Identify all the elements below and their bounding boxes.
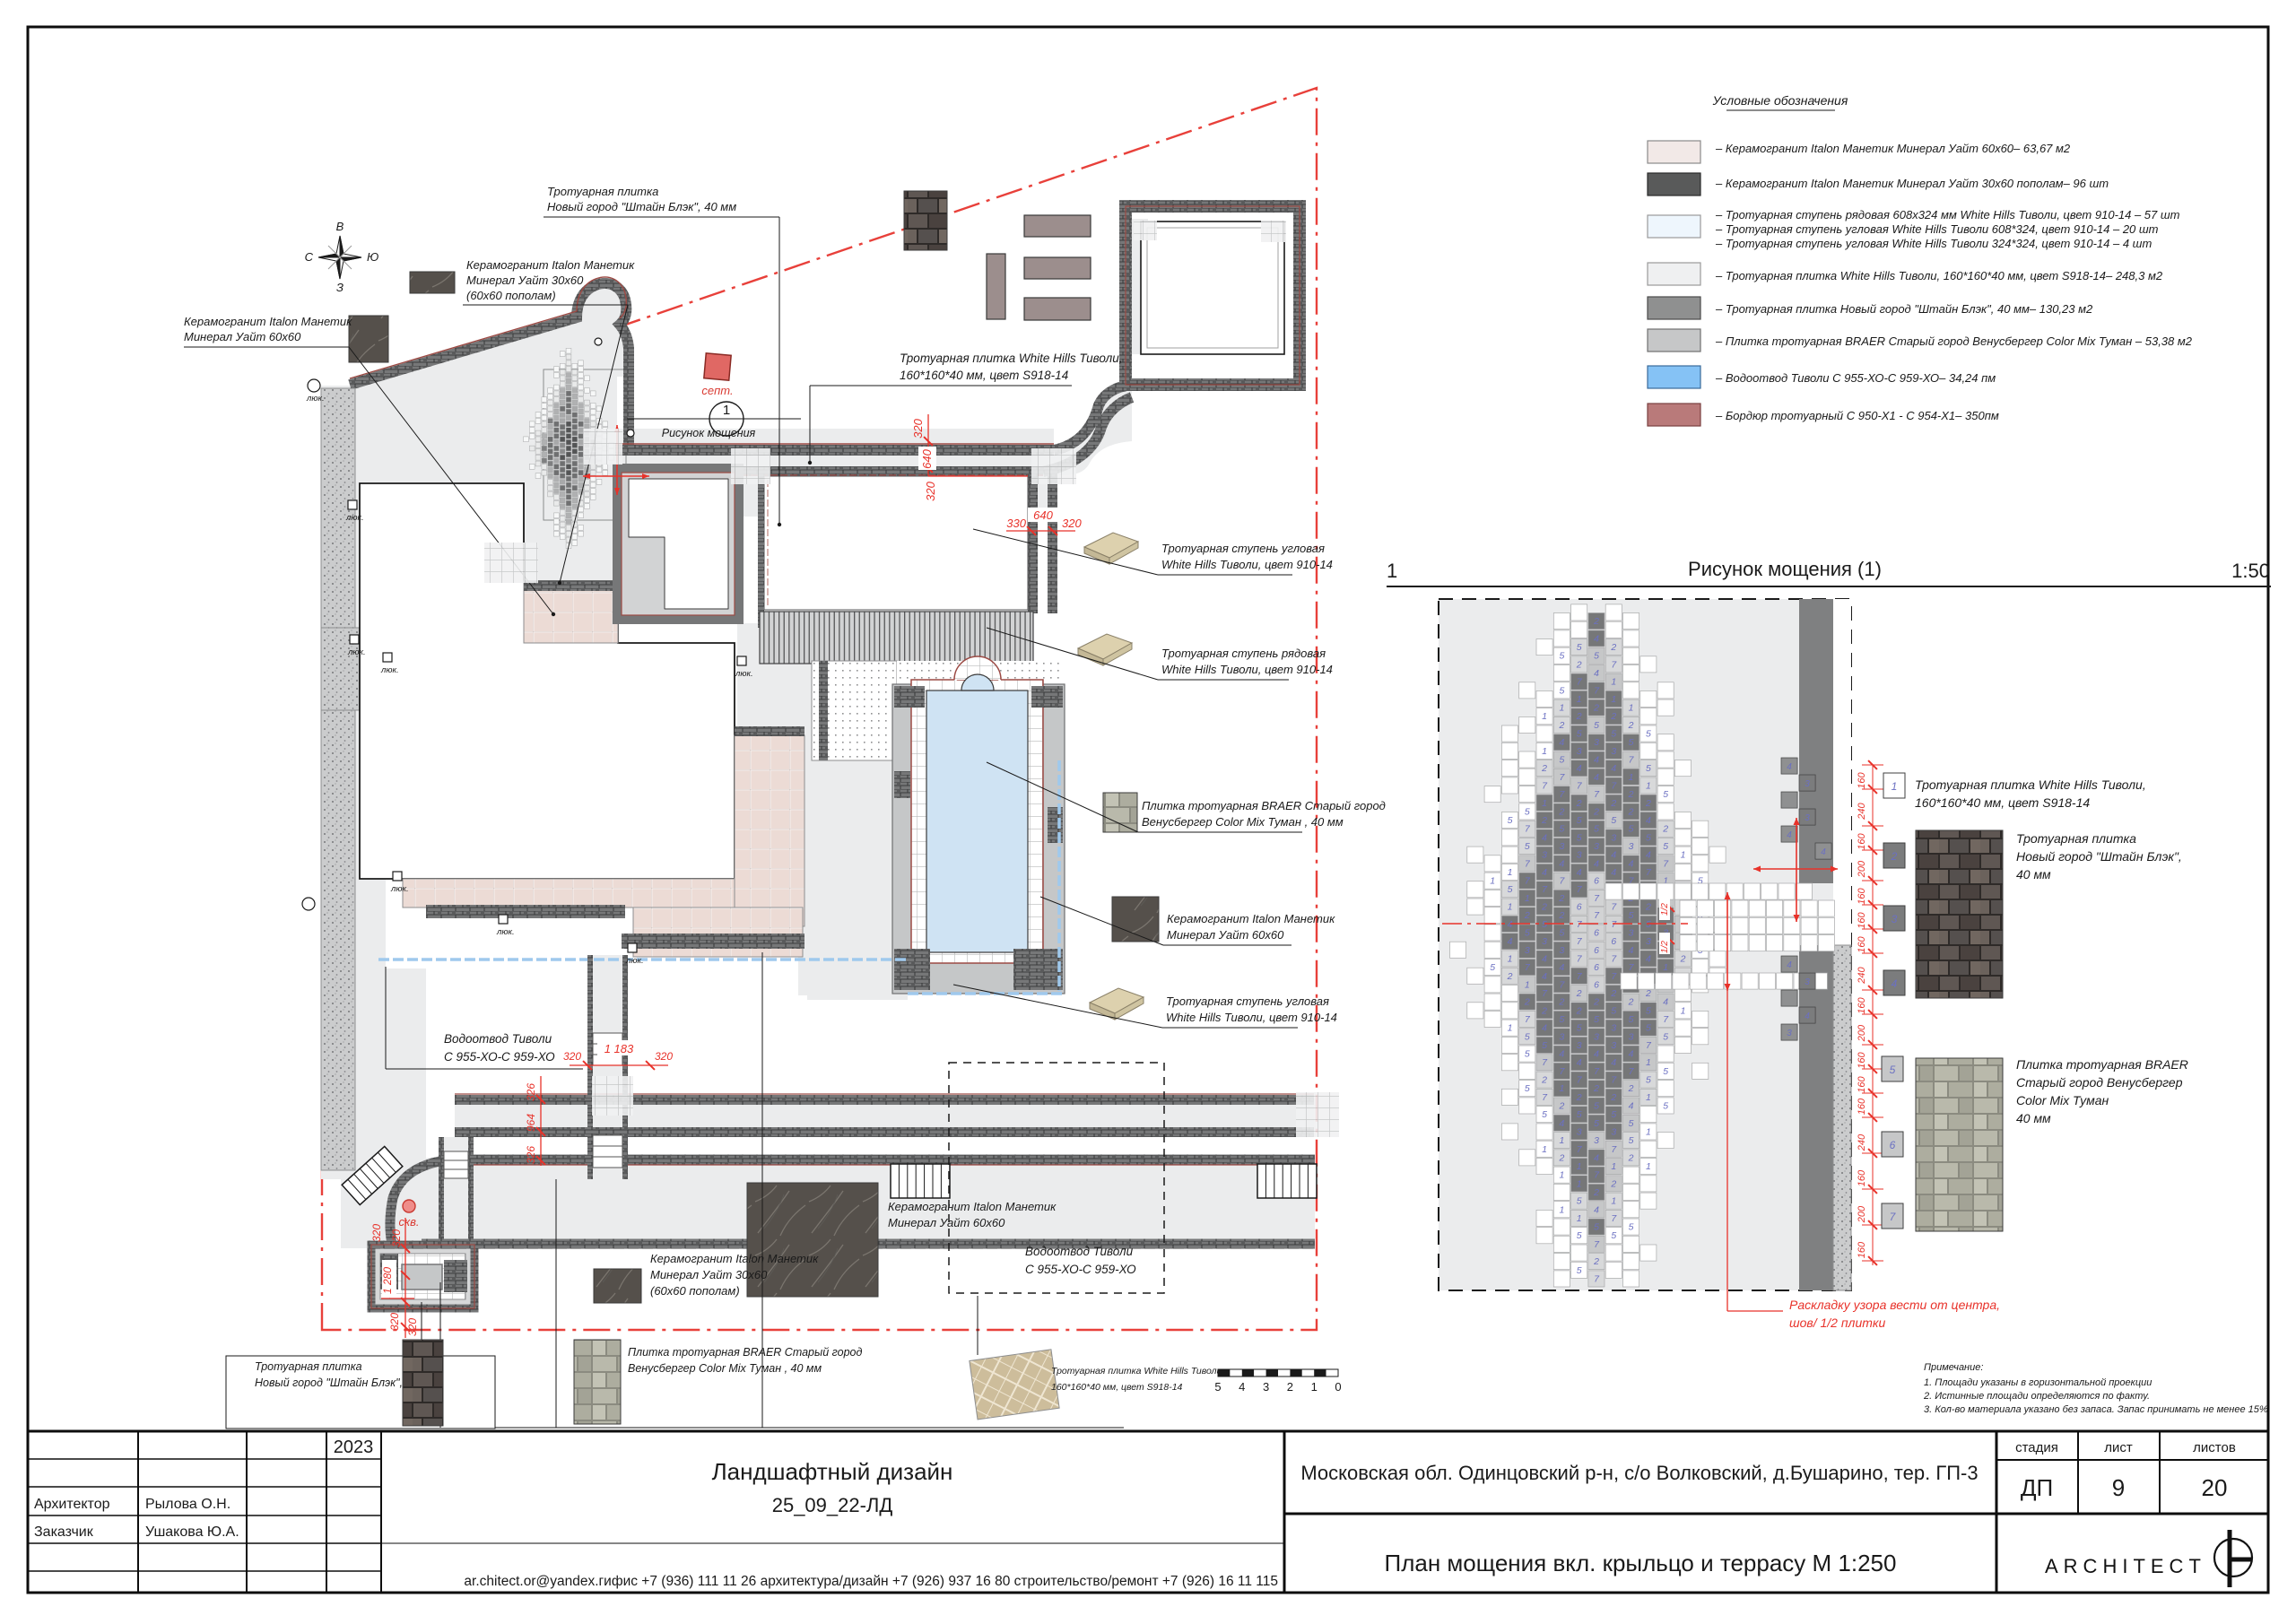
svg-text:5: 5 [1629,910,1634,921]
svg-text:2: 2 [1610,988,1616,999]
svg-text:5: 5 [1577,1230,1582,1241]
svg-text:4: 4 [1577,763,1582,774]
svg-text:320: 320 [563,1050,581,1063]
svg-text:1: 1 [1559,1170,1564,1181]
svg-text:4: 4 [1559,858,1564,869]
svg-text:3: 3 [1629,841,1634,852]
svg-text:320: 320 [370,1224,383,1242]
svg-text:5: 5 [1525,841,1530,852]
svg-text:1: 1 [1559,1135,1564,1146]
svg-text:5: 5 [1542,1040,1547,1051]
svg-text:4: 4 [1594,1204,1599,1215]
svg-text:– Бордюр тротуарный С 950-Х1 -: – Бордюр тротуарный С 950-Х1 - С 954-Х1–… [1715,409,1999,422]
svg-text:2: 2 [1541,763,1547,774]
svg-text:2: 2 [1541,1075,1547,1086]
svg-text:Водоотвод Тиволи: Водоотвод Тиволи [444,1032,552,1046]
svg-text:3: 3 [1805,813,1810,823]
svg-text:Минерал Уайт 60х60: Минерал Уайт 60х60 [1167,928,1284,942]
svg-text:160: 160 [1857,1075,1867,1092]
svg-text:3: 3 [1629,1031,1634,1042]
svg-text:5: 5 [1490,962,1495,973]
svg-text:Венусбергер Color Mix Туман ,: Венусбергер Color Mix Туман , 40 мм [628,1362,822,1375]
svg-text:160: 160 [1857,1169,1867,1186]
svg-text:2: 2 [1628,1152,1634,1163]
svg-text:Тротуарная плитка White Hills: Тротуарная плитка White Hills Тиволи, [900,352,1123,365]
svg-text:3: 3 [1577,1127,1582,1138]
svg-text:2: 2 [1662,824,1668,835]
svg-text:160*160*40 мм, цвет S918-14: 160*160*40 мм, цвет S918-14 [900,369,1068,382]
svg-text:Керамогранит Italon Манетик: Керамогранит Italon Манетик [650,1252,819,1265]
svg-text:160: 160 [1857,996,1867,1013]
svg-text:320: 320 [924,481,937,500]
svg-text:320: 320 [406,1318,419,1336]
svg-text:1: 1 [1629,772,1634,783]
svg-text:White Hills Тиволи, цвет 910-1: White Hills Тиволи, цвет 910-14 [1161,558,1333,571]
svg-text:1: 1 [1646,780,1651,791]
svg-text:1: 1 [1577,1213,1582,1224]
svg-text:Тротуарная плитка: Тротуарная плитка [2016,831,2136,846]
svg-text:Архитектор: Архитектор [34,1497,110,1512]
svg-text:2: 2 [1576,1005,1582,1016]
svg-text:1:50: 1:50 [2231,560,2270,582]
svg-text:160: 160 [1857,832,1867,849]
svg-text:– Тротуарная плитка White Hill: – Тротуарная плитка White Hills Тиволи, … [1715,269,2163,282]
svg-text:5: 5 [1525,1031,1530,1042]
svg-text:White Hills Тиволи, цвет 910-1: White Hills Тиволи, цвет 910-14 [1161,663,1333,676]
svg-text:640: 640 [920,448,934,468]
svg-text:1: 1 [1542,798,1547,809]
svg-text:люк.: люк. [306,394,325,404]
svg-text:4: 4 [1542,832,1547,843]
svg-text:4: 4 [1646,954,1651,965]
svg-text:1: 1 [1508,867,1513,878]
svg-text:5: 5 [1594,651,1599,662]
svg-text:1: 1 [1577,1161,1582,1172]
svg-text:3: 3 [1892,913,1898,925]
svg-text:200: 200 [1857,1024,1867,1042]
svg-text:1: 1 [1525,979,1530,990]
svg-text:Color Mix Туман: Color Mix Туман [2016,1093,2109,1107]
svg-text:160*160*40 мм, цвет S918-14: 160*160*40 мм, цвет S918-14 [1051,1382,1183,1393]
svg-text:люк.: люк. [347,647,366,657]
svg-text:3: 3 [1594,1031,1599,1042]
svg-text:3: 3 [1787,1029,1792,1038]
svg-text:6: 6 [1611,936,1616,947]
svg-text:Заказчик: Заказчик [34,1524,94,1540]
svg-text:4: 4 [1508,936,1513,947]
svg-text:– Плитка тротуарная BRAER Стар: – Плитка тротуарная BRAER Старый город В… [1715,334,2193,348]
svg-text:2: 2 [1541,1005,1547,1016]
svg-text:320: 320 [1062,517,1082,530]
svg-text:Рисунок мощения (1): Рисунок мощения (1) [1688,558,1882,580]
svg-text:Керамогранит Italon Манетик: Керамогранит Italon Манетик [888,1200,1057,1213]
svg-text:5: 5 [1508,884,1513,895]
svg-text:4: 4 [1611,850,1616,861]
svg-text:– Тротуарная ступень рядовая 6: – Тротуарная ступень рядовая 608х324 мм … [1715,208,2180,221]
svg-text:5: 5 [1559,824,1564,835]
svg-text:1: 1 [723,403,730,418]
svg-text:4: 4 [1542,954,1547,965]
svg-text:3: 3 [1559,945,1564,956]
svg-text:5: 5 [1646,1023,1651,1034]
svg-text:6: 6 [1890,1139,1896,1151]
svg-text:2: 2 [1645,988,1651,999]
svg-text:4: 4 [1542,1023,1547,1034]
svg-text:160: 160 [1857,887,1867,904]
svg-text:4: 4 [1821,847,1826,857]
svg-text:1. Площади указаны в горизонта: 1. Площади указаны в горизонтальной прое… [1924,1377,2152,1388]
svg-text:люк.: люк. [735,669,753,679]
svg-text:1 183: 1 183 [604,1042,634,1055]
svg-text:Тротуарная плитка White Hills: Тротуарная плитка White Hills Тиволи, [1915,777,2146,792]
svg-text:5: 5 [1525,806,1530,817]
svg-text:2: 2 [1558,806,1564,817]
svg-text:скв.: скв. [398,1215,419,1229]
svg-text:С 955-ХО-С 959-ХО: С 955-ХО-С 959-ХО [444,1050,555,1064]
svg-text:2: 2 [1610,711,1616,722]
svg-text:2: 2 [1576,659,1582,670]
svg-text:200: 200 [1857,860,1867,878]
svg-text:5: 5 [1594,720,1599,731]
svg-text:5: 5 [1594,1222,1599,1233]
svg-text:1: 1 [1611,1196,1616,1207]
svg-text:1: 1 [1663,962,1668,973]
svg-text:Минерал Уайт 30х60: Минерал Уайт 30х60 [650,1268,768,1281]
svg-text:1: 1 [1508,1023,1513,1034]
svg-text:3: 3 [1629,928,1634,939]
svg-text:240: 240 [1857,966,1867,984]
svg-text:160*160*40 мм, цвет S918-14: 160*160*40 мм, цвет S918-14 [1915,795,2090,810]
svg-text:1: 1 [1611,677,1616,688]
svg-text:– Керамогранит Italon Манетик: – Керамогранит Italon Манетик Минерал Уа… [1715,177,2109,190]
svg-text:6: 6 [1594,962,1599,973]
svg-text:1/2: 1/2 [1660,903,1670,916]
svg-text:2: 2 [1593,1083,1599,1094]
svg-text:2: 2 [1610,642,1616,653]
svg-text:4: 4 [1787,762,1792,772]
svg-text:Тротуарная плитка: Тротуарная плитка [547,185,658,198]
svg-text:3: 3 [1611,832,1616,843]
svg-text:9: 9 [2112,1474,2125,1501]
svg-text:5: 5 [1559,1014,1564,1025]
svg-text:2: 2 [1558,1101,1564,1112]
svg-text:Венусбергер Color Mix Туман ,: Венусбергер Color Mix Туман , 40 мм [1142,815,1344,829]
svg-text:– Тротуарная плитка Новый горо: – Тротуарная плитка Новый город "Штайн Б… [1715,302,2093,316]
svg-text:5: 5 [1577,1109,1582,1120]
svg-text:3: 3 [1611,1023,1616,1034]
svg-text:5: 5 [1542,1109,1547,1120]
svg-text:2: 2 [1610,798,1616,809]
svg-text:2: 2 [1287,1380,1293,1394]
svg-text:2: 2 [1610,1178,1616,1189]
svg-text:2: 2 [1593,997,1599,1008]
svg-text:4: 4 [1629,1101,1634,1112]
svg-text:2: 2 [1680,954,1686,965]
svg-text:2: 2 [1593,616,1599,627]
svg-text:2: 2 [1628,720,1634,731]
svg-text:2. Истинные площади определяют: 2. Истинные площади определяются по факт… [1923,1391,2150,1402]
svg-text:326: 326 [525,1146,537,1164]
svg-text:1: 1 [1542,711,1547,722]
svg-text:1: 1 [1646,1161,1651,1172]
svg-text:160: 160 [1857,1241,1867,1258]
svg-text:6: 6 [1594,979,1599,990]
svg-text:160: 160 [1857,771,1867,788]
svg-text:2: 2 [1645,902,1651,913]
svg-text:Тротуарная плитка: Тротуарная плитка [255,1360,362,1373]
svg-text:5: 5 [1611,1005,1616,1016]
svg-text:– Тротуарная ступень угловая W: – Тротуарная ступень угловая White Hills… [1715,237,2152,250]
svg-text:1: 1 [1559,703,1564,714]
svg-text:1: 1 [1508,902,1513,913]
svg-text:4: 4 [1542,971,1547,982]
svg-text:1: 1 [1577,694,1582,705]
svg-text:6: 6 [1577,902,1582,913]
svg-text:Рисунок мощения: Рисунок мощения [662,427,756,439]
svg-text:6: 6 [1594,945,1599,956]
svg-text:5: 5 [1646,1005,1651,1016]
svg-text:5: 5 [1646,763,1651,774]
svg-text:5: 5 [1629,824,1634,835]
svg-text:240: 240 [1857,802,1867,820]
svg-text:4: 4 [1508,919,1513,930]
svg-text:1: 1 [1559,1083,1564,1094]
svg-text:5: 5 [1629,1014,1634,1025]
svg-text:3: 3 [1611,746,1616,757]
svg-text:1: 1 [1525,893,1530,904]
svg-text:В: В [336,220,344,233]
svg-text:3: 3 [1577,1040,1582,1051]
svg-text:ar.chitect.or@yandex.гифис +7: ar.chitect.or@yandex.гифис +7 (936) 111 … [464,1574,1278,1589]
svg-text:1: 1 [1542,1144,1547,1155]
svg-text:2: 2 [1576,711,1582,722]
svg-text:2: 2 [1628,1083,1634,1094]
svg-text:1: 1 [1508,954,1513,965]
svg-text:326: 326 [525,1083,537,1101]
svg-text:4: 4 [1629,858,1634,869]
svg-text:3: 3 [1542,936,1547,947]
svg-text:Условные обозначения: Условные обозначения [1712,93,1848,108]
svg-text:1: 1 [1611,1161,1616,1172]
svg-text:5: 5 [1629,1135,1634,1146]
svg-text:4: 4 [1892,977,1898,990]
svg-text:3: 3 [1805,779,1810,789]
svg-text:ДП: ДП [2021,1474,2053,1501]
svg-text:5: 5 [1663,789,1668,800]
svg-text:3: 3 [1646,936,1651,947]
svg-text:4: 4 [1559,962,1564,973]
svg-text:2: 2 [1891,850,1898,863]
svg-text:листов: листов [2193,1440,2236,1455]
svg-text:25_09_22-ЛД: 25_09_22-ЛД [772,1494,893,1516]
svg-text:2: 2 [1628,806,1634,817]
svg-text:люк.: люк. [345,513,364,523]
svg-text:3: 3 [1559,1031,1564,1042]
svg-text:Тротуарная плитка White Hills: Тротуарная плитка White Hills Тиволи, [1051,1366,1224,1376]
svg-text:(60х60 пополам): (60х60 пополам) [466,289,556,302]
svg-text:6: 6 [1594,876,1599,887]
svg-text:3. Кол-во материала указано бе: 3. Кол-во материала указано без запаса. … [1924,1404,2268,1415]
svg-text:2: 2 [1558,1152,1564,1163]
svg-text:1: 1 [1646,1057,1651,1068]
svg-text:4: 4 [1239,1380,1245,1394]
svg-text:160: 160 [1857,1051,1867,1068]
svg-text:3: 3 [1525,945,1530,956]
svg-text:Плитка тротуарная BRAER: Плитка тротуарная BRAER [2016,1057,2188,1072]
svg-text:5: 5 [1611,815,1616,826]
svg-text:1: 1 [1490,876,1495,887]
svg-text:1: 1 [1681,850,1686,861]
svg-text:5: 5 [1629,737,1634,748]
svg-text:Ю: Ю [367,250,378,264]
svg-text:Рылова О.Н.: Рылова О.Н. [145,1497,230,1512]
svg-text:лист: лист [2104,1440,2133,1455]
svg-text:5: 5 [1577,1023,1582,1034]
svg-text:1: 1 [1542,746,1547,757]
svg-text:5: 5 [1646,919,1651,930]
svg-text:4: 4 [1611,1057,1616,1068]
svg-text:2023: 2023 [334,1437,374,1457]
svg-text:5: 5 [1663,1066,1668,1077]
svg-text:Плитка тротуарная BRAER Старый: Плитка тротуарная BRAER Старый город [628,1346,862,1359]
svg-text:2: 2 [1593,1187,1599,1198]
svg-text:Примечание:: Примечание: [1924,1362,1983,1373]
svg-text:3: 3 [1594,1135,1599,1146]
svg-text:С 955-ХО-С 959-ХО: С 955-ХО-С 959-ХО [1025,1263,1136,1276]
svg-text:4: 4 [1559,1049,1564,1060]
svg-text:1: 1 [1387,560,1397,582]
svg-text:З: З [336,281,344,294]
svg-text:– Водоотвод Тиволи С 955-ХО-С: – Водоотвод Тиволи С 955-ХО-С 959-ХО– 34… [1715,371,1996,385]
svg-text:3: 3 [1263,1380,1269,1394]
svg-text:(60х60 пополам): (60х60 пополам) [650,1284,740,1298]
svg-text:Ушакова Ю.А.: Ушакова Ю.А. [145,1524,239,1540]
svg-text:Керамогранит Italon Манетик: Керамогранит Italon Манетик [466,258,635,272]
svg-text:4: 4 [1787,830,1792,840]
svg-text:люк.: люк. [496,927,515,937]
svg-text:Минерал Уайт 60х60: Минерал Уайт 60х60 [888,1216,1005,1229]
svg-text:320: 320 [911,418,925,438]
svg-text:5: 5 [1525,1049,1530,1060]
svg-text:Тротуарная ступень угловая: Тротуарная ступень угловая [1161,542,1325,555]
svg-text:стадия: стадия [2015,1440,2058,1455]
svg-text:White Hills Тиволи, цвет 910-1: White Hills Тиволи, цвет 910-14 [1166,1011,1337,1024]
svg-text:3: 3 [1611,1127,1616,1138]
svg-text:2: 2 [1593,1256,1599,1267]
svg-text:320: 320 [388,1313,401,1331]
svg-text:2: 2 [1507,971,1513,982]
svg-text:160: 160 [1857,935,1867,952]
svg-text:2: 2 [1541,815,1547,826]
svg-text:Водоотвод Тиволи: Водоотвод Тиволи [1025,1245,1134,1258]
svg-text:3: 3 [1805,977,1810,987]
svg-text:2: 2 [1576,798,1582,809]
svg-text:– Керамогранит Italon Манетик: – Керамогранит Italon Манетик Минерал Уа… [1715,142,2071,155]
svg-text:План мощения вкл. крыльцо и те: План мощения вкл. крыльцо и террасу М 1:… [1385,1550,1897,1576]
svg-text:4: 4 [1663,997,1668,1008]
svg-text:Новый город "Штайн Блэк", 40 м: Новый город "Штайн Блэк", 40 мм [547,200,736,213]
svg-text:3: 3 [1611,1040,1616,1051]
svg-text:5: 5 [1577,642,1582,653]
svg-text:4: 4 [1594,755,1599,766]
svg-text:Минерал Уайт 60х60: Минерал Уайт 60х60 [184,330,301,343]
svg-text:2: 2 [1558,910,1564,921]
svg-text:5: 5 [1577,1265,1582,1276]
svg-text:1: 1 [1311,1380,1318,1394]
svg-text:3: 3 [1577,746,1582,757]
svg-text:2: 2 [1558,720,1564,731]
svg-text:640: 640 [1033,508,1053,522]
svg-text:4: 4 [1787,960,1792,970]
svg-text:5: 5 [1890,1064,1896,1076]
svg-text:160: 160 [1857,1098,1867,1115]
svg-text:5: 5 [1508,815,1513,826]
svg-text:Плитка тротуарная BRAER Старый: Плитка тротуарная BRAER Старый город [1142,799,1386,812]
svg-text:4: 4 [1577,867,1582,878]
svg-text:5: 5 [1559,685,1564,696]
svg-text:4: 4 [1594,668,1599,679]
svg-text:3: 3 [1594,841,1599,852]
svg-text:2: 2 [1524,997,1530,1008]
svg-text:6: 6 [1594,928,1599,939]
svg-text:септ.: септ. [701,384,733,397]
svg-text:шов/ 1/2 плитки: шов/ 1/2 плитки [1789,1316,1886,1330]
svg-text:5: 5 [1594,1014,1599,1025]
svg-text:4: 4 [1629,1049,1634,1060]
svg-text:Тротуарная ступень рядовая: Тротуарная ступень рядовая [1161,647,1326,660]
svg-text:5: 5 [1577,815,1582,826]
svg-text:0: 0 [1335,1380,1341,1394]
svg-text:5: 5 [1646,1075,1651,1086]
svg-text:ARCHITECT: ARCHITECT [2045,1555,2206,1577]
svg-text:1: 1 [1559,1204,1564,1215]
svg-text:240: 240 [1857,1133,1867,1151]
svg-text:1: 1 [1646,1127,1651,1138]
svg-text:Минерал Уайт 30х60: Минерал Уайт 30х60 [466,274,584,287]
svg-text:40 мм: 40 мм [2016,1111,2051,1125]
svg-text:2: 2 [1645,798,1651,809]
svg-text:5: 5 [1214,1380,1221,1394]
svg-text:Керамогранит Italon Манетик: Керамогранит Italon Манетик [1167,912,1335,925]
svg-text:3: 3 [1559,841,1564,852]
svg-text:4: 4 [1611,763,1616,774]
svg-text:5: 5 [1525,928,1530,939]
svg-text:4: 4 [1542,867,1547,878]
svg-text:20: 20 [2202,1474,2228,1501]
svg-text:2: 2 [1558,893,1564,904]
svg-text:5: 5 [1663,1031,1668,1042]
svg-text:4: 4 [1594,633,1599,644]
svg-text:5: 5 [1663,1101,1668,1112]
svg-text:4: 4 [1559,737,1564,748]
svg-text:Раскладку узора вести от центр: Раскладку узора вести от центра, [1789,1298,2000,1312]
svg-text:2: 2 [1541,902,1547,913]
svg-text:4: 4 [1594,1049,1599,1060]
svg-text:1: 1 [1577,1178,1582,1189]
svg-text:3: 3 [1577,850,1582,861]
svg-text:– Тротуарная ступень угловая W: – Тротуарная ступень угловая White Hills… [1715,222,2159,236]
svg-text:5: 5 [1663,841,1668,852]
svg-text:1 280: 1 280 [381,1267,394,1294]
svg-text:4: 4 [1629,945,1634,956]
svg-text:5: 5 [1629,1222,1634,1233]
svg-text:5: 5 [1594,1118,1599,1129]
svg-text:люк.: люк. [380,665,399,675]
svg-text:1: 1 [1629,703,1634,714]
svg-text:2: 2 [1628,997,1634,1008]
svg-text:1: 1 [1646,1092,1651,1103]
svg-text:Старый город Венусбергер: Старый город Венусбергер [2016,1075,2183,1090]
